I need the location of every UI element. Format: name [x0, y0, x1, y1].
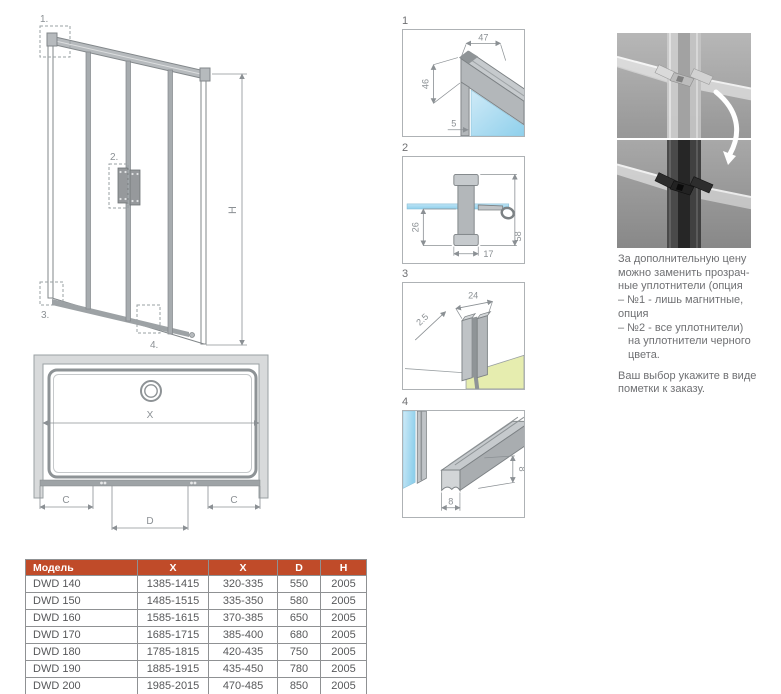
detail-number: 2 — [402, 141, 525, 156]
cell-x2: 370-385 — [209, 610, 278, 627]
table-row: DWD 180 1785-1815 420-435 750 2005 — [26, 644, 367, 661]
cell-h: 2005 — [321, 644, 367, 661]
cell-x1: 1485-1515 — [138, 593, 209, 610]
cell-x2: 470-485 — [209, 678, 278, 694]
door-track-bar — [40, 480, 260, 486]
table-row: DWD 150 1485-1515 335-350 580 2005 — [26, 593, 367, 610]
cell-model: DWD 170 — [26, 627, 138, 644]
table-row: DWD 160 1585-1615 370-385 650 2005 — [26, 610, 367, 627]
dim-8-height: 8 — [517, 467, 524, 472]
cell-h: 2005 — [321, 610, 367, 627]
detail-number: 3 — [402, 267, 525, 282]
seal-note-line: можно заменить прозрач- — [618, 267, 764, 281]
detail-box-handle: 26 17 58 — [402, 156, 525, 264]
drain-circle — [141, 381, 161, 401]
height-dimension-label: H — [227, 206, 239, 214]
seal-note-line: ные уплотнители (опция — [618, 280, 764, 294]
callout-label-1: 1. — [40, 14, 48, 25]
cell-x1: 1385-1415 — [138, 576, 209, 593]
detail-block-3: 3 24 2.5 — [402, 267, 525, 390]
table-row: DWD 140 1385-1415 320-335 550 2005 — [26, 576, 367, 593]
spec-table: Модель X X D H DWD 140 1385-1415 320-335… — [25, 559, 367, 694]
seal-note-line: цвета. — [628, 349, 764, 363]
table-row: DWD 200 1985-2015 470-485 850 2005 — [26, 678, 367, 694]
detail-block-1: 1 47 46 — [402, 14, 525, 137]
threshold-profile — [442, 417, 524, 490]
wall-profile — [462, 312, 490, 381]
cell-x1: 1585-1615 — [138, 610, 209, 627]
cell-h: 2005 — [321, 627, 367, 644]
dim-5: 5 — [451, 119, 456, 129]
col-header-x2: X — [209, 560, 278, 576]
handle-profile — [454, 174, 478, 245]
seal-note-line: опция — [618, 308, 764, 322]
dim-17: 17 — [483, 249, 493, 259]
side-dimension-left-label: C — [62, 495, 69, 506]
cell-d: 580 — [278, 593, 321, 610]
cell-h: 2005 — [321, 576, 367, 593]
seal-note: За дополнительную цену можно заменить пр… — [618, 253, 764, 397]
cell-model: DWD 160 — [26, 610, 138, 627]
left-cap — [47, 33, 57, 46]
col-header-model: Модель — [26, 560, 138, 576]
cell-d: 780 — [278, 661, 321, 678]
dim-26: 26 — [410, 222, 420, 232]
cell-d: 680 — [278, 627, 321, 644]
dim-58: 58 — [513, 231, 523, 241]
cell-x1: 1885-1915 — [138, 661, 209, 678]
table-header-row: Модель X X D H — [26, 560, 367, 576]
detail-block-4: 4 — [402, 395, 525, 518]
catalog-page: 1. 2. 3. 4. H X C C D — [0, 0, 781, 694]
cell-d: 650 — [278, 610, 321, 627]
cell-x2: 335-350 — [209, 593, 278, 610]
cell-d: 850 — [278, 678, 321, 694]
cell-h: 2005 — [321, 661, 367, 678]
cell-x2: 385-400 — [209, 627, 278, 644]
cell-x2: 435-450 — [209, 661, 278, 678]
detail-block-2: 2 26 — [402, 141, 525, 264]
callout-label-2: 2. — [110, 152, 118, 163]
replace-arrow-icon — [698, 88, 754, 172]
detail-box-threshold: 8 8 — [402, 410, 525, 518]
side-dimension-right-label: C — [230, 495, 237, 506]
cell-d: 550 — [278, 576, 321, 593]
handle-hook — [500, 206, 515, 220]
cell-model: DWD 180 — [26, 644, 138, 661]
dim-46: 46 — [420, 79, 430, 89]
col-header-d: D — [278, 560, 321, 576]
callout-label-3: 3. — [41, 310, 49, 321]
table-row: DWD 170 1685-1715 385-400 680 2005 — [26, 627, 367, 644]
panel-divider — [86, 52, 91, 309]
right-cap — [200, 68, 210, 81]
cell-model: DWD 140 — [26, 576, 138, 593]
dim-47: 47 — [478, 32, 488, 42]
cell-h: 2005 — [321, 678, 367, 694]
dim-8-width: 8 — [448, 497, 453, 507]
cell-x2: 320-335 — [209, 576, 278, 593]
plan-view-drawing: X C C D — [28, 352, 300, 540]
glass-panel — [403, 411, 415, 488]
table-row: DWD 190 1885-1915 435-450 780 2005 — [26, 661, 367, 678]
seal-note-line: пометки к заказу. — [618, 383, 764, 397]
detail-number: 4 — [402, 395, 525, 410]
panel-divider — [168, 70, 173, 334]
cell-model: DWD 150 — [26, 593, 138, 610]
door-dimension-label: D — [146, 516, 153, 527]
detail-box-wall-profile: 24 2.5 — [402, 282, 525, 390]
cell-h: 2005 — [321, 593, 367, 610]
seal-note-line: на уплотнители черного — [628, 335, 764, 349]
detail-box-top-rail: 47 46 5 — [402, 29, 525, 137]
cell-d: 750 — [278, 644, 321, 661]
detail-number: 1 — [402, 14, 525, 29]
left-wall-profile — [48, 46, 53, 298]
seal-note-line: За дополнительную цену — [618, 253, 764, 267]
seal-note-line: – №2 - все уплотнители) — [618, 322, 764, 336]
width-dimension-label: X — [147, 410, 154, 421]
col-header-h: H — [321, 560, 367, 576]
cell-model: DWD 190 — [26, 661, 138, 678]
seal-note-line: – №1 - лишь магнитные, — [618, 294, 764, 308]
cell-x1: 1685-1715 — [138, 627, 209, 644]
dim-24: 24 — [468, 290, 478, 300]
cell-x1: 1785-1815 — [138, 644, 209, 661]
cell-x2: 420-435 — [209, 644, 278, 661]
door-elevation-drawing: 1. 2. 3. 4. H — [28, 8, 300, 352]
seal-note-line: Ваш выбор укажите в виде — [618, 370, 764, 384]
callout-label-4: 4. — [150, 340, 158, 351]
col-header-x1: X — [138, 560, 209, 576]
cell-x1: 1985-2015 — [138, 678, 209, 694]
cell-model: DWD 200 — [26, 678, 138, 694]
right-wall-profile — [201, 81, 206, 344]
dim-2-5: 2.5 — [414, 312, 430, 328]
